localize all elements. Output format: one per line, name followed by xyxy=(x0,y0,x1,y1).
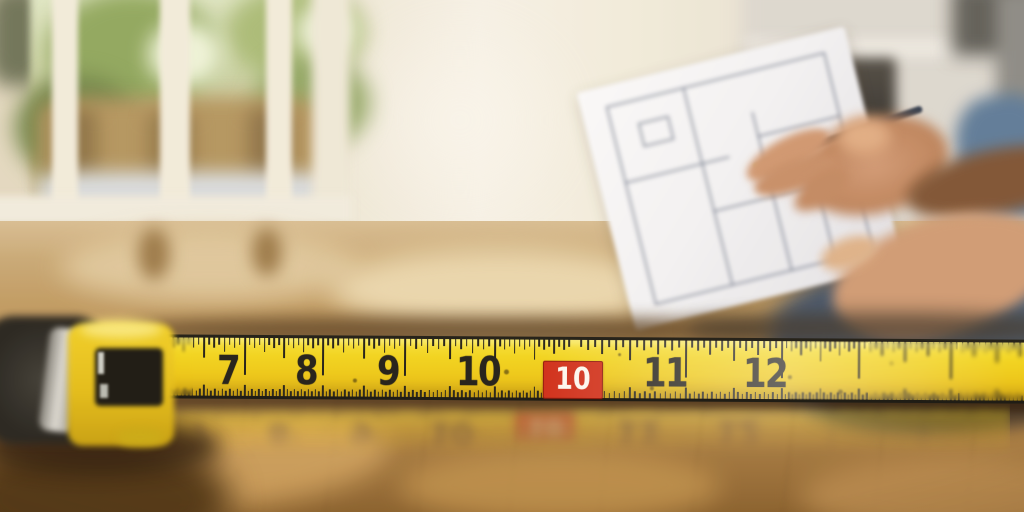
tape-tick xyxy=(254,338,256,348)
tape-tick xyxy=(208,411,210,416)
tape-defocus xyxy=(930,407,1014,457)
tape-tick xyxy=(580,453,582,458)
tape-tick xyxy=(358,339,360,346)
tape-tick xyxy=(290,410,292,414)
tape-tick xyxy=(720,392,722,399)
tape-tick xyxy=(394,339,396,349)
tape-tick xyxy=(373,339,375,349)
tape-tick xyxy=(615,451,617,459)
tape-tick xyxy=(534,340,536,360)
tape-tick xyxy=(315,449,317,460)
tape-tick xyxy=(226,453,228,461)
tape-tick xyxy=(280,411,282,416)
tape-tick xyxy=(524,340,526,350)
tape-defocus xyxy=(760,408,840,458)
tape-tick xyxy=(293,338,295,348)
tape-tick xyxy=(421,339,423,346)
tape-tick xyxy=(399,449,401,460)
tape-tick xyxy=(519,393,521,398)
tape-tick xyxy=(573,448,575,459)
tape-tick xyxy=(309,410,311,415)
tape-tick xyxy=(642,409,644,413)
tape-tick xyxy=(339,410,341,415)
tape-tick xyxy=(509,409,511,414)
knuckle-highlight xyxy=(838,118,890,154)
tape-tick xyxy=(251,411,253,416)
tape-tick xyxy=(325,452,327,460)
tape-tick xyxy=(298,410,300,414)
tape-tick xyxy=(213,338,215,348)
tape-tick xyxy=(587,340,589,350)
tape-tick xyxy=(715,394,717,399)
tape-tick xyxy=(748,408,750,412)
tape-tick xyxy=(368,410,370,415)
tape-tick xyxy=(678,341,680,348)
tape-tick xyxy=(723,453,725,458)
tape-tick xyxy=(496,452,498,460)
tape-tick xyxy=(626,409,628,414)
tape-tick xyxy=(724,394,726,399)
tape-tick xyxy=(763,341,765,348)
tape-tick xyxy=(361,410,363,415)
tape-tick xyxy=(186,411,188,416)
tape-tick xyxy=(744,408,746,413)
tape-tick xyxy=(320,455,322,460)
tape-tick xyxy=(501,454,503,459)
tape-tick xyxy=(330,455,332,460)
tape-tick xyxy=(483,339,485,349)
tape-tick xyxy=(283,411,285,415)
tape-tick xyxy=(260,455,262,460)
tape-tick xyxy=(775,341,777,348)
tape-tick xyxy=(234,411,236,415)
tape-tick xyxy=(249,338,251,345)
tape-tick xyxy=(722,408,724,412)
tape-tick xyxy=(241,411,243,415)
tape-tick xyxy=(537,391,539,398)
tape-tick xyxy=(718,408,720,413)
tape-tick xyxy=(305,410,307,414)
tape-tick xyxy=(455,339,457,346)
tape-mark xyxy=(353,379,357,383)
tape-tick xyxy=(331,410,333,415)
tape-tick xyxy=(462,410,464,414)
tape-tick xyxy=(182,411,184,415)
tape-tick xyxy=(506,444,508,460)
tape-tick xyxy=(259,338,261,345)
tape-tick xyxy=(298,338,300,345)
tape-tick xyxy=(230,411,232,416)
tape-tick xyxy=(529,340,531,347)
tape-tick xyxy=(520,454,522,459)
tape-tick xyxy=(608,393,610,398)
tape-tick xyxy=(745,341,747,351)
tape-reflection: 78910111210 xyxy=(120,400,1010,469)
tape-tick xyxy=(484,409,486,413)
tape-tick xyxy=(735,408,737,413)
tape-number: 8 xyxy=(272,348,340,394)
tape-tick xyxy=(317,338,319,345)
tape-tick xyxy=(212,411,214,415)
tape-tick xyxy=(312,410,314,414)
tape-tick xyxy=(735,453,737,458)
tape-tick xyxy=(624,391,626,398)
tape-tick xyxy=(631,409,633,413)
tape-tick xyxy=(587,451,589,459)
tape-tick xyxy=(308,338,310,345)
tape-tick xyxy=(396,410,398,414)
tape-tick xyxy=(417,410,419,415)
tape-tick xyxy=(444,339,446,346)
tape-mark xyxy=(622,420,626,423)
tape-tick xyxy=(679,408,681,412)
tape-tick xyxy=(622,453,624,458)
tape-tick xyxy=(523,391,525,398)
tape-tick xyxy=(687,453,689,458)
tape-tick xyxy=(692,408,694,413)
tape-tick xyxy=(415,454,417,459)
tape-tick xyxy=(491,409,493,413)
tape-tick xyxy=(575,409,577,414)
tape-tick xyxy=(248,411,250,415)
tape-tick xyxy=(525,448,527,459)
tape-mark xyxy=(650,386,654,390)
tape-tick xyxy=(530,454,532,459)
tape-tick xyxy=(357,410,359,414)
tape-tick xyxy=(681,447,683,458)
tape-tick xyxy=(239,338,241,345)
tape-tick xyxy=(751,341,753,348)
tape-tick xyxy=(636,409,638,414)
tape-tick xyxy=(449,454,451,459)
tape-tick xyxy=(340,455,342,460)
tape-tick xyxy=(519,340,521,347)
tape-tick xyxy=(445,410,447,414)
tape-tick xyxy=(543,340,545,350)
tape-tick xyxy=(353,339,355,349)
tape-tick xyxy=(533,387,535,398)
tape-tick xyxy=(279,455,281,460)
tape-tick xyxy=(594,340,596,347)
tape-tick xyxy=(399,339,401,346)
tape-tick xyxy=(601,340,603,354)
tape-tick xyxy=(342,410,344,414)
tape-tick xyxy=(389,339,391,346)
tape-tick xyxy=(514,340,516,354)
tape-tick xyxy=(270,455,272,460)
tape-tick xyxy=(691,341,693,348)
tape-tick xyxy=(410,452,412,460)
tape-tick xyxy=(666,409,668,414)
foot-marker-label: 10 xyxy=(520,414,569,442)
tape-tick xyxy=(530,391,532,398)
case-reflection xyxy=(100,384,108,398)
tape-tick xyxy=(433,410,435,415)
tape-tick xyxy=(511,454,513,459)
tape-tick xyxy=(432,452,434,460)
tape-tick xyxy=(491,454,493,459)
tape-tick xyxy=(711,453,713,458)
tape-tick xyxy=(312,338,314,348)
tape-tick xyxy=(287,410,289,415)
tape-tick xyxy=(460,454,462,459)
tape-number: 8 xyxy=(244,417,312,453)
tape-tick xyxy=(696,408,698,412)
tape-tick xyxy=(487,409,489,414)
tape-tick xyxy=(552,454,554,459)
tape-tick xyxy=(709,341,711,355)
tape-number: 11 xyxy=(603,415,671,451)
tape-tick xyxy=(596,409,598,414)
tape-tick xyxy=(289,455,291,460)
tape-tick xyxy=(231,455,233,460)
tape-tick xyxy=(338,338,340,345)
tape-tick xyxy=(449,410,451,415)
tape-tick xyxy=(221,455,223,460)
tape-tick xyxy=(709,408,711,413)
tape-tick xyxy=(234,338,236,348)
tape-tick xyxy=(427,339,429,353)
tape-tick xyxy=(404,454,406,459)
tape-tick xyxy=(663,453,665,458)
tape-tick xyxy=(566,453,568,458)
tape-tick xyxy=(711,392,713,399)
tape-tick xyxy=(739,341,741,348)
tape-tick xyxy=(340,391,342,396)
tape-mark xyxy=(618,353,621,356)
floor-reflection xyxy=(60,232,360,302)
foot-marker: 10 xyxy=(515,413,575,443)
tape-mark xyxy=(325,426,329,429)
tape-tick xyxy=(606,409,608,414)
tape-tick xyxy=(619,393,621,398)
tape-tick xyxy=(489,339,491,346)
tape-tick xyxy=(714,408,716,412)
tape-tick xyxy=(265,453,267,461)
tape-tick xyxy=(486,448,488,459)
tape-tick xyxy=(327,338,329,345)
tape-tick xyxy=(288,338,290,345)
tape-tick xyxy=(553,340,555,354)
tape-tick xyxy=(693,450,695,458)
tape-tick xyxy=(432,339,434,346)
tape-tick xyxy=(415,339,417,349)
tape-tick xyxy=(353,410,355,415)
tape-tick xyxy=(669,451,671,459)
tape-tick xyxy=(675,453,677,458)
tape-tick xyxy=(240,455,242,460)
tape-tick xyxy=(539,340,541,347)
tape-tick xyxy=(460,339,462,349)
tape-tick xyxy=(425,410,427,415)
tape-tick xyxy=(643,340,645,350)
tape-tick xyxy=(361,455,363,460)
tape-tick xyxy=(636,340,638,347)
tape-tick xyxy=(558,340,560,347)
tape-mark xyxy=(590,446,593,448)
tape-tick xyxy=(535,451,537,459)
foot-marker: 10 xyxy=(543,361,603,399)
tape-tick xyxy=(179,411,181,416)
tape-tick xyxy=(250,455,252,460)
tape-tick xyxy=(346,410,348,415)
tape-tick xyxy=(495,409,497,414)
tape-tick xyxy=(316,410,318,415)
tape-number: 7 xyxy=(194,348,262,394)
tape-tick xyxy=(509,339,511,346)
tape-tick xyxy=(548,340,550,347)
tape-tick xyxy=(498,409,500,413)
tape-tick xyxy=(697,341,699,351)
tape-defocus xyxy=(868,342,958,401)
tape-tick xyxy=(265,411,267,416)
tape-tick xyxy=(526,393,528,398)
tape-tick xyxy=(652,409,654,413)
tape-tick xyxy=(301,410,303,415)
tape-tick xyxy=(621,409,623,413)
tape-tick xyxy=(559,451,561,459)
tape-mark xyxy=(504,369,509,374)
tape-tick xyxy=(683,408,685,413)
tape-tick xyxy=(670,408,672,412)
tape-tick xyxy=(309,455,311,460)
tape-tick xyxy=(611,409,613,413)
tape-tick xyxy=(427,454,429,459)
tape-tick xyxy=(413,410,415,414)
tape-tick xyxy=(190,411,192,415)
tape-tick xyxy=(473,410,475,415)
tape-tick xyxy=(350,455,352,460)
tape-tick xyxy=(404,410,406,414)
tape-tick xyxy=(366,452,368,460)
tape-tick xyxy=(392,410,394,415)
tape-tick xyxy=(717,450,719,458)
tape-tick xyxy=(643,451,645,459)
tape-tick xyxy=(409,410,411,415)
tape-tick xyxy=(622,340,624,347)
tape-tick xyxy=(671,340,673,350)
tape-tick xyxy=(469,410,471,414)
tape-tick xyxy=(226,411,228,415)
tape-number: 10 xyxy=(416,416,484,452)
tape-tick xyxy=(437,410,439,414)
tape-tick xyxy=(477,339,479,346)
tape-blade: 78910111210 xyxy=(148,334,1024,403)
tape-tick xyxy=(769,341,771,351)
tape-tick xyxy=(327,410,329,414)
tape-tick xyxy=(382,454,384,459)
tape-tick xyxy=(476,452,478,460)
tape-tick xyxy=(454,410,456,414)
tape-tick xyxy=(580,340,582,347)
tape-tick xyxy=(219,411,221,415)
tape-tick xyxy=(237,411,239,416)
tape-tick xyxy=(480,409,482,414)
tape-tick xyxy=(379,339,381,346)
tape-tick xyxy=(236,450,238,461)
tape-tick xyxy=(700,408,702,413)
tape-tick xyxy=(269,411,271,415)
tape-tick xyxy=(715,341,717,348)
tape-tick xyxy=(580,409,582,413)
tape-tick xyxy=(365,410,367,414)
tape-tick xyxy=(466,339,468,346)
tape-tick xyxy=(608,340,610,347)
tape-tick xyxy=(438,339,440,349)
tape-tick xyxy=(264,338,266,352)
tape-number: 11 xyxy=(631,350,699,396)
tape-tick xyxy=(603,391,605,398)
tape-tick xyxy=(393,454,395,459)
tape-tick xyxy=(702,392,704,399)
tape-defocus xyxy=(958,342,1024,401)
tape-tick xyxy=(384,410,386,415)
tape-tick xyxy=(687,408,689,412)
tape-tick xyxy=(481,454,483,459)
tape-tick xyxy=(428,390,430,397)
tape-tick xyxy=(410,339,412,346)
tape-tick xyxy=(245,453,247,461)
tape-tick xyxy=(515,451,517,459)
foot-marker-label: 10 xyxy=(548,362,598,398)
tape-tick xyxy=(324,410,326,415)
tape-tick xyxy=(540,393,542,398)
tape-case-highlight xyxy=(80,320,162,338)
tape-tick xyxy=(284,453,286,461)
tape-tick xyxy=(278,338,280,345)
tape-tick xyxy=(201,411,203,416)
floor-dark-streak xyxy=(252,228,282,276)
tape-tick xyxy=(269,391,271,396)
tape-tick xyxy=(205,411,207,415)
tape-tick xyxy=(343,338,345,352)
tape-tick xyxy=(707,394,709,399)
tape-tick xyxy=(273,411,275,416)
tape-defocus xyxy=(788,341,868,399)
tape-tick xyxy=(591,409,593,413)
tape-tick xyxy=(540,454,542,459)
tape-tick xyxy=(616,409,618,414)
tape-tick xyxy=(664,340,666,347)
tape-tick xyxy=(387,452,389,460)
tape-tick xyxy=(441,392,443,397)
tape-tick xyxy=(515,391,517,398)
tape-tick xyxy=(198,338,200,345)
tape-tick xyxy=(400,410,402,415)
tape-tick xyxy=(458,410,460,415)
tape-defocus xyxy=(840,407,930,457)
tape-tick xyxy=(219,338,221,345)
tape-tick xyxy=(471,454,473,459)
tape-tick xyxy=(424,392,426,397)
tape-tick xyxy=(432,392,434,397)
tape-tick xyxy=(350,410,352,414)
tape-tick xyxy=(608,453,610,458)
tape-tick xyxy=(380,410,382,414)
tape-tick xyxy=(647,409,649,414)
tape-tick xyxy=(441,410,443,415)
tape-tick xyxy=(594,453,596,458)
tape-tick xyxy=(258,411,260,416)
tape-tick xyxy=(265,389,267,396)
tape-tick xyxy=(615,340,617,350)
tape-tick xyxy=(747,453,749,458)
tape-tick xyxy=(636,453,638,458)
tape-tick xyxy=(568,340,570,347)
tape-tick xyxy=(193,411,195,416)
tape-tick xyxy=(563,340,565,350)
floor-dark-streak xyxy=(138,228,170,280)
